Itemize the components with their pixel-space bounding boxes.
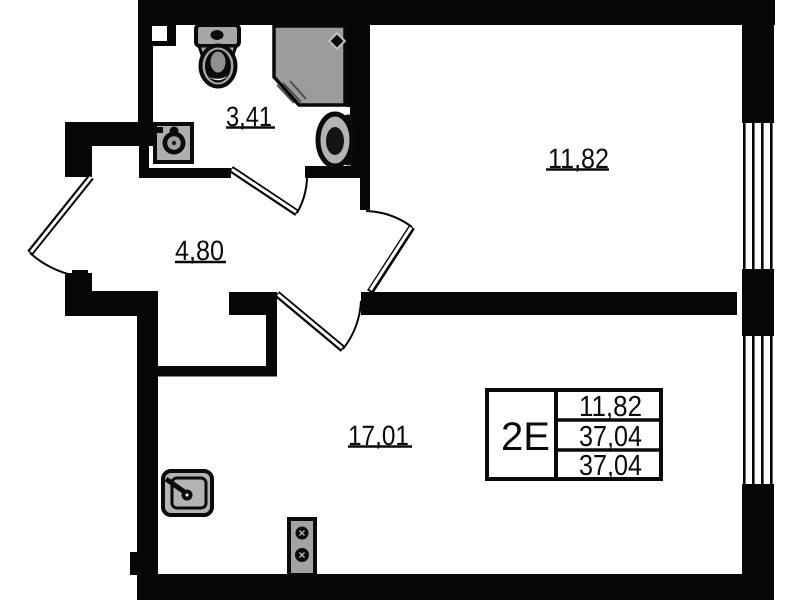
svg-text:2E: 2E bbox=[501, 415, 550, 459]
svg-text:37,04: 37,04 bbox=[579, 450, 642, 482]
svg-text:11,82: 11,82 bbox=[579, 391, 642, 423]
svg-text:37,04: 37,04 bbox=[579, 421, 642, 453]
